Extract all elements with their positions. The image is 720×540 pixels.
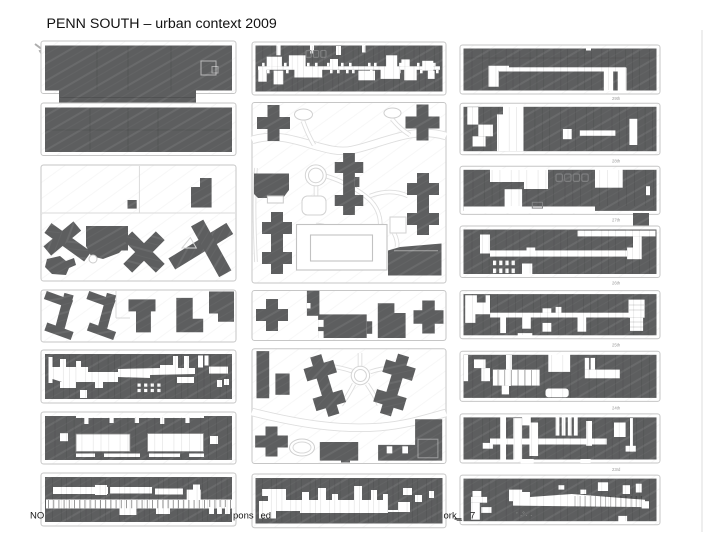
svg-text:’ ·˚· ·: ’ ·˚· · (516, 511, 533, 520)
svg-text:PENN SOUTH – urban context 200: PENN SOUTH – urban context 2009 (47, 16, 277, 32)
svg-text:28th: 28th (612, 159, 621, 164)
svg-text:pons: pons (233, 511, 254, 522)
svg-text:ork_: ork_ (444, 511, 463, 522)
svg-text:25th: 25th (612, 343, 621, 348)
svg-text:ed: ed (261, 511, 272, 522)
svg-text:29th: 29th (612, 96, 621, 101)
svg-text:27th: 27th (612, 218, 621, 223)
svg-text:7: 7 (470, 511, 475, 522)
svg-text:26th: 26th (612, 281, 621, 286)
svg-text:NO: NO (30, 511, 44, 522)
svg-text:24th: 24th (612, 406, 621, 411)
svg-text:23rd: 23rd (612, 467, 621, 472)
